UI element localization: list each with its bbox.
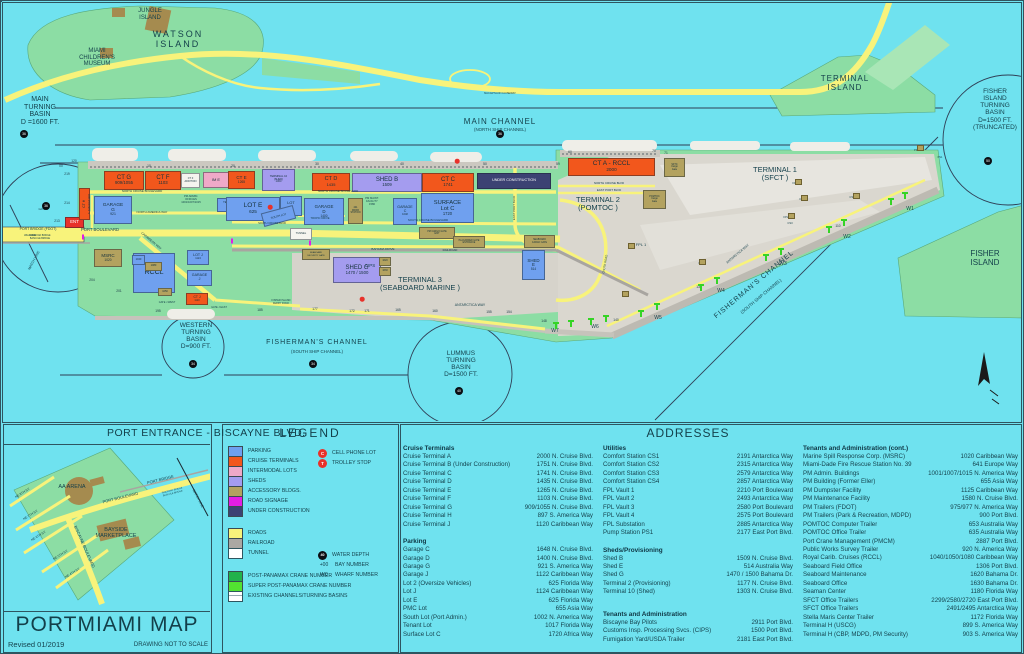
bay-number: 201 [116,289,122,293]
map-label-jungle: JUNGLE ISLAND [138,8,162,21]
small-building-icon [917,145,924,151]
small-building-icon [628,243,635,249]
address-value: 2580 Port Boulevard [737,504,793,512]
map-label-main: MAIN TURNING BASIN D =1600 FT. [21,96,59,127]
address-value: 1180 Florida Way [971,588,1018,596]
bay-number: 219 [64,172,70,176]
address-name: PM Admin. Buildings [803,470,859,478]
address-value: 921 S. America Way [538,563,593,571]
portmiami-map-title: PORTMIAMI MAP [16,613,199,637]
map-label-antarctica-way: ANTARCTICA WAY [726,244,750,265]
address-row: Seaboard Office1630 Bahama Dr. [803,580,1018,588]
address-value: 2181 East Port Blvd. [737,636,793,644]
address-name: Biscayne Bay Pilots [603,619,657,627]
address-row: PM Dumpster Facility1125 Caribbean Way [803,487,1018,495]
crane-icon [828,226,830,233]
address-name: Tenant Lot [403,622,432,630]
address-name: Seaman Center [803,588,846,596]
map-label-terminal-1: TERMINAL 1 (SFCT ) [753,166,797,183]
map-label-miami: MIAMI CHILDREN'S MUSEUM [79,48,115,68]
address-value: 2857 Antarctica Way [737,478,793,486]
address-row: Tenant Lot1017 Florida Way [403,622,593,630]
address-value: 655 Asia Way [556,605,593,613]
bay-number: 140 [613,318,619,322]
legend-label: TROLLEY STOP [332,460,371,466]
address-name: Garage D [403,555,430,563]
map-label-ne-4th-st-: NE 4TH ST. [65,568,81,580]
wharf-number-icon: W0 [318,571,330,580]
trolley-stop-icon: T [318,459,327,468]
addresses-column-1: Cruise TerminalsCruise Terminal A2000 N.… [403,444,593,639]
address-row: Lot E625 Florida Way [403,597,593,605]
address-row: Port Crane Management (PMCM)2887 Port Bl… [803,538,1018,546]
address-name: SFCT Office Trailers [803,597,858,605]
legend-label: UNDER CONSTRUCTION [248,508,310,514]
bay-number: 10 [147,164,151,168]
address-value: 1177 N. Cruise Blvd. [737,580,793,588]
address-value: 899 S. America Way [963,622,1018,630]
address-row: FPL Vault 22493 Antarctica Way [603,495,793,503]
small-building-icon [795,179,802,185]
map-label-macarthur-causeway: MACARTHUR CAUSEWAY [484,93,516,96]
legend-symbol-item: W0WHARF NUMBER [318,570,378,580]
bay-number: 177 [312,307,318,311]
legend-symbol-item: +00BAY NUMBER [318,560,378,570]
map-label-ne-7th-st-: NE 7TH ST. [23,510,39,522]
address-name: Cruise Terminal A [403,453,451,461]
bay-number: 214 [64,201,70,205]
cell-phone-lot-icon: C [318,449,327,458]
address-row: PM Trailers (FDOT)975/977 N. America Way [803,504,1018,512]
map-label-north-cruise-boulevard: NORTH CRUISE BOULEVARD [122,190,162,193]
address-name: Terminal 10 (Shed) [603,588,655,596]
legend-label: ACCESSORY BLDGS. [248,488,301,494]
water-depth-badge: 34 [189,360,197,368]
address-name: Cruise Terminal G [403,504,452,512]
address-value: 635 Australia Way [969,529,1018,537]
address-name: Shed G [603,571,624,579]
address-name: Comfort Station CS1 [603,453,659,461]
map-label-watson: WATSON ISLAND [153,30,204,50]
bay-number: 70 [652,149,656,153]
map-label-fpl-1: FPL 1 [636,243,647,247]
map-label-western: WESTERN TURNING BASIN D=900 FT. [180,322,213,351]
crane-icon [843,219,845,226]
address-row: Stella Maris Center Trailer1172 Florida … [803,614,1018,622]
bay-number: 40 [400,162,404,166]
bay-number: 71 [664,151,668,155]
address-row: FPL Vault 42575 Port Boulevard [603,512,793,520]
address-name: Surface Lot C [403,631,441,639]
address-value: 2911 Port Blvd. [751,619,793,627]
map-label-cs3: CS3 [787,223,792,226]
map-label-welcome: WELCOME [24,235,36,238]
underconst-swatch [228,506,243,517]
address-name: Garage C [403,546,430,554]
address-name: FPL Vault 3 [603,504,634,512]
address-value: 2315 Antarctica Way [737,461,793,469]
address-value: 655 Asia Way [981,478,1018,486]
bay-number: 155 [486,310,492,314]
address-row: POMTOC Office Trailer635 Australia Way [803,529,1018,537]
map-label-bahama-drive: BAHAMA DRIVE [371,248,394,251]
map-label-w4: W4 [717,289,725,295]
address-value: 2579 Antarctica Way [737,470,793,478]
address-name: Shed B [603,555,623,563]
address-row: Fumigation Yard/USDA Trailer2181 East Po… [603,636,793,644]
address-value: 514 Australia Way [744,563,793,571]
crane-icon [605,315,607,322]
address-name: Seaboard Maintenance [803,571,867,579]
address-value: 1741 N. Cruise Blvd. [537,470,593,478]
address-row: Cruise Terminal E1265 N. Cruise Blvd. [403,487,593,495]
address-name: POMTOC Computer Trailer [803,521,877,529]
address-name: Lot 2 (Oversize Vehicles) [403,580,471,588]
address-value: 2491/2495 Antarctica Way [947,605,1018,613]
water-depth-badge: 36 [42,202,50,210]
map-label-south-cruise-blvd: SOUTH CRUISE BLVD [258,223,286,226]
crane-icon [890,198,892,205]
address-name: Pump Station PS1 [603,529,653,537]
map-label-gate-j-west: GATE J WEST [159,302,175,305]
map-label-gate-j-east: GATE J EAST [211,307,227,310]
legend-symbol-item: 40WATER DEPTH [318,550,378,560]
bay-number: 213 [54,219,60,223]
address-row: Pump Station PS12177 East Port Blvd. [603,529,793,537]
address-name: Seaboard Office [803,580,847,588]
crane-icon [656,303,658,310]
address-name: Garage G [403,563,430,571]
address-row: Lot 2 (Oversize Vehicles)625 Florida Way [403,580,593,588]
address-row: FPL Vault 12210 Port Boulevard [603,487,793,495]
map-label-cips: CIPS [365,264,376,269]
address-name: FPL Substation [603,521,645,529]
map-label-w2: W2 [843,235,851,241]
legend-title: LEGEND [279,426,340,440]
address-row: Terminal 10 (Shed)1303 N. Cruise Blvd. [603,588,793,596]
address-value: 1306 Port Blvd. [976,563,1018,571]
address-name: Lot J [403,588,416,596]
map-label-pm-admin-: PM ADMIN. OFFICES 1001/1007/1015 [181,196,200,205]
address-row: Royal Carib. Cruises (RCCL)1040/1050/108… [803,554,1018,562]
address-value: 641 Europe Way [972,461,1018,469]
map-label-tropic-drive: TROPIC DRIVE [310,218,329,221]
bay-number: 59 [556,162,560,166]
map-label-lummus: LUMMUS TURNING BASIN D=1500 FT. [444,350,478,379]
address-name: POMTOC Office Trailer [803,529,866,537]
revised-date: Revised 01/2019 [8,640,64,649]
address-value: 1580 N. Cruise Blvd. [962,495,1018,503]
crane-icon [904,192,906,199]
address-name: PM Trailers (FDOT) [803,504,857,512]
address-row: PM Trailers (Park & Recreation, MDPD)900… [803,512,1018,520]
legend-symbol-list: CCELL PHONE LOTTTROLLEY STOP40WATER DEPT… [318,448,378,580]
address-row: Garage C1648 N. Cruise Blvd. [403,546,593,554]
addresses-column-3: Tenants and Administration (cont.)Marine… [803,444,1018,639]
map-label-port-boulevard: PORT BOULEVARD [102,492,138,505]
crane-icon [716,277,718,284]
map-label-port-bridge-fdot-: PORT BRIDGE (FDOT) [20,228,57,232]
address-value: 625 Florida Way [549,580,593,588]
address-name: South Lot (Port Admin.) [403,614,467,622]
map-label-ps1: PS1 [938,157,943,160]
map-label-s-america-way: S. AMERICA WAY [89,194,92,214]
bay-number: 154 [506,310,512,314]
address-name: FPL Vault 2 [603,495,634,503]
address-value: 1002 N. America Way [534,614,593,622]
address-row: Comfort Station CS42857 Antarctica Way [603,478,793,486]
address-row: Garage J1122 Caribbean Way [403,571,593,579]
address-value: 2299/2580/2720 East Port Blvd. [931,597,1018,605]
map-label-caribbean-way: CARIBBEAN WAY [140,232,162,251]
bay-number: 148 [541,319,547,323]
legend-label: CELL PHONE LOT [332,450,376,456]
address-row: FPL Vault 32580 Port Boulevard [603,504,793,512]
address-name: Royal Carib. Cruises (RCCL) [803,554,882,562]
address-value: 1125 Caribbean Way [961,487,1018,495]
address-row: Cruise Terminal J1120 Caribbean Way [403,521,593,529]
address-row: Garage G921 S. America Way [403,563,593,571]
bay-number: 165 [395,308,401,312]
map-label-north-cruise-blvd: NORTH CRUISE BLVD [594,182,624,185]
bay-number: 110 [835,224,840,228]
road-sign-icon [82,235,84,240]
address-row: POMTOC Computer Trailer653 Australia Way [803,521,1018,529]
small-building-icon [801,195,808,201]
address-row: Surface Lot C1720 Africa Way [403,631,593,639]
legend-label: WHARF NUMBER [335,572,378,578]
address-row: Customs Insp. Processing Svcs. (CIPS)150… [603,627,793,635]
address-value: 1435 N. Cruise Blvd. [537,478,593,486]
address-name: Shed E [603,563,623,571]
address-value: 1630 Bahama Dr. [970,580,1018,588]
address-name: Port Crane Management (PMCM) [803,538,895,546]
map-label-north-cruise-boulevard: NORTH CRUISE BOULEVARD [318,190,358,193]
address-row: Garage D1400 N. Cruise Blvd. [403,555,593,563]
address-name: Cruise Terminal F [403,495,451,503]
address-name: PMC Lot [403,605,427,613]
legend-label: RAILROAD [248,540,275,546]
legend-symbol-item: CCELL PHONE LOT [318,448,378,458]
address-value: 1017 Florida Way [545,622,593,630]
address-row: Terminal H (CBP, MDPD, PM Security)903 S… [803,631,1018,639]
map-label-terminal-2: TERMINAL 2 (POMTOC ) [576,196,620,213]
map-label-fisherman-s-channel: FISHERMAN'S CHANNEL [266,339,368,347]
map-label-railroad-bridge: RAILROAD BRIDGE BASCULE BRIDGE [162,487,184,497]
address-value: 1400 N. Cruise Blvd. [537,555,593,563]
address-name: Seaboard Field Office [803,563,862,571]
address-name: Garage J [403,571,428,579]
crane-icon [765,254,767,261]
address-row: SFCT Office Trailers2491/2495 Antarctica… [803,605,1018,613]
map-label-match-line: MATCH LINE [28,251,41,271]
address-value: 1001/1007/1015 N. America Way [928,470,1018,478]
portmiami-map-sheet: PORT ENTRANCE - BISCAYNE BLVD. LEGEND AD… [0,0,1024,654]
address-section-header: Sheds/Provisioning [603,546,793,555]
map-label-fisher-island: FISHER ISLAND FERRY DOCK [272,300,291,306]
water-depth-badge: 36 [20,130,28,138]
map-label-ne-8th-st-: NE 8TH ST. [15,488,31,500]
legend-symbol-item: TTROLLEY STOP [318,458,378,468]
legend-label: INTERMODAL LOTS [248,468,297,474]
address-value: 1040/1050/1080 Caribbean Way [930,554,1018,562]
address-section-header: Cruise Terminals [403,444,593,453]
address-name: Fumigation Yard/USDA Trailer [603,636,685,644]
bay-number: 160 [432,309,438,313]
address-value: 1122 Caribbean Way [536,571,593,579]
crane-icon [640,310,642,317]
map-label-ne-6th-st-: NE 6TH ST. [31,531,47,543]
address-value: 2887 Port Blvd. [976,538,1018,546]
address-name: Comfort Station CS2 [603,461,659,469]
address-value: 1509 N. Cruise Blvd. [737,555,793,563]
address-row: Seaboard Field Office1306 Port Blvd. [803,563,1018,571]
map-label-w5: W5 [654,316,662,322]
map-label-w1: W1 [906,207,914,213]
address-row: Seaboard Maintenance1620 Bahama Dr. [803,571,1018,579]
address-row: Seaman Center1180 Florida Way [803,588,1018,596]
map-label-biscayne-boulevard: BISCAYNE BOULEVARD [73,525,95,568]
map-label-port-bridge: PORT BRIDGE [147,475,175,486]
address-name: Cruise Terminal B (Under Construction) [403,461,510,469]
address-name: PM Maintenance Facility [803,495,870,503]
address-row: Lot J1124 Caribbean Way [403,588,593,596]
address-name: FPL Vault 4 [603,512,634,520]
address-value: 1303 N. Cruise Blvd. [737,588,793,596]
small-building-icon [788,213,795,219]
address-value: 1120 Caribbean Way [536,521,593,529]
address-name: Stella Maris Center Trailer [803,614,874,622]
address-value: 1103 N. Cruise Blvd. [537,495,593,503]
address-row: Cruise Terminal B (Under Construction)17… [403,461,593,469]
map-label-bayside: BAYSIDE MARKETPLACE [96,527,137,539]
address-row: Terminal H (USCG)899 S. America Way [803,622,1018,630]
legend-label: CRUISE TERMINALS [248,458,299,464]
address-value: 1648 N. Cruise Blvd. [537,546,593,554]
bay-number: 00 [59,164,63,168]
address-value: 903 S. America Way [963,631,1018,639]
address-value: 1172 Florida Way [971,614,1018,622]
map-label-fisher: FISHER ISLAND TURNING BASIN D=1500 FT. (… [973,88,1017,131]
bay-number: 172 [349,309,355,313]
address-row: Cruise Terminal H897 S. America Way [403,512,593,520]
address-name: Marine Spill Response Corp. (MSRC) [803,453,905,461]
legend-label: PARKING [248,448,271,454]
address-row: PM Admin. Buildings1001/1007/1015 N. Ame… [803,470,1018,478]
address-name: FPL Vault 1 [603,487,634,495]
address-name: Terminal 2 (Provisioning) [603,580,671,588]
legend-item: SUPER POST-PANAMAX CRANE NUMBER [228,581,351,591]
map-label-fisher: FISHER ISLAND [970,250,999,268]
legend-label: EXISTING CHANNELS/TURNING BASINS [248,593,347,599]
address-name: Terminal H (CBP, MDPD, PM Security) [803,631,908,639]
address-section-header: Tenants and Administration (cont.) [803,444,1018,453]
address-name: PM Building (Former Eller) [803,478,875,486]
address-name: Cruise Terminal C [403,470,452,478]
address-value: 1470 / 1500 Bahama Dr. [726,571,793,579]
crane-icon [570,320,572,327]
address-name: Comfort Station CS4 [603,478,659,486]
map-label-w3: W3 [779,262,787,268]
map-label-match-line: MATCH LINE [191,489,204,509]
map-label-main-channel: MAIN CHANNEL [464,118,536,127]
tunnel-swatch [228,548,243,559]
address-value: 2575 Port Boulevard [737,512,793,520]
address-value: 625 Florida Way [549,597,593,605]
crane-icon [555,322,557,329]
bay-number: 204 [89,278,95,282]
legend-label: SUPER POST-PANAMAX CRANE NUMBER [248,583,351,589]
address-row: PMC Lot655 Asia Way [403,605,593,613]
map-label-north-america-way: NORTH AMERICA WAY [137,211,168,214]
road-sign-icon [231,239,233,244]
address-value: 920 N. America Way [962,546,1018,554]
address-name: PM Dumpster Facility [803,487,861,495]
bay-number: 185 [257,308,263,312]
map-label-ne-5th-st-: NE 5TH ST. [53,550,69,562]
crane-icon [590,318,592,325]
map-label-railroad: RAILROAD [443,249,458,252]
address-value: 2210 Port Boulevard [737,487,793,495]
address-name: Terminal H (USCG) [803,622,856,630]
map-label-port-boulevard: PORT BOULEVARD [81,228,119,233]
address-value: 1620 Bahama Dr. [970,571,1018,579]
address-name: Customs Insp. Processing Svcs. (CIPS) [603,627,711,635]
water-depth-badge: 50 [984,157,992,165]
crane-icon [780,248,782,255]
map-label-chute-road: CHUTE ROAD [602,255,608,274]
address-value: 2000 N. Cruise Blvd. [537,453,593,461]
water-depth-icon: 40 [318,551,327,560]
address-row: Shed G1470 / 1500 Bahama Dr. [603,571,793,579]
legend-label: WATER DEPTH [332,552,369,558]
map-label-w6: W6 [591,325,599,331]
legend-label: ROAD SIGNAGE [248,498,288,504]
address-value: 909/1055 N. Cruise Blvd. [525,504,593,512]
small-building-icon [699,259,706,265]
address-value: 900 Port Blvd. [979,512,1018,520]
address-section-header: Parking [403,537,593,546]
scale-note: DRAWING NOT TO SCALE [134,642,208,648]
bay-number: 30 [315,162,319,166]
channels-swatch [228,591,243,602]
map-label--south-ship-channel-: (SOUTH SHIP CHANNEL) [291,350,343,355]
legend-label: TUNNEL [248,550,269,556]
address-row: Miami-Dade Fire Rescue Station No. 39641… [803,461,1018,469]
address-value: 1500 Port Blvd. [751,627,793,635]
address-value: 975/977 N. America Way [950,504,1018,512]
address-value: 1751 N. Cruise Blvd. [537,461,593,469]
address-row: PM Maintenance Facility1580 N. Cruise Bl… [803,495,1018,503]
address-row: South Lot (Port Admin.)1002 N. America W… [403,614,593,622]
bay-number-icon: +00 [318,561,330,570]
stop-dot-icon [455,159,460,164]
stop-dot-icon [360,297,365,302]
address-name: Comfort Station CS3 [603,470,659,478]
addresses-column-2: UtilitiesComfort Station CS12191 Antarct… [603,444,793,644]
map-label-south-cruise-boulevard: SOUTH CRUISE BOULEVARD [408,219,448,222]
address-name: PM Trailers (Park & Recreation, MDPD) [803,512,911,520]
address-name: Cruise Terminal H [403,512,452,520]
address-row: SFCT Office Trailers2299/2580/2720 East … [803,597,1018,605]
address-row: Shed E514 Australia Way [603,563,793,571]
address-row: Marine Spill Response Corp. (MSRC)1020 C… [803,453,1018,461]
map-label-w7: W7 [551,329,559,335]
address-section-header: Tenants and Administration [603,610,793,619]
bay-number: 171 [364,309,370,313]
address-row: Cruise Terminal C1741 N. Cruise Blvd. [403,470,593,478]
crane-icon [700,284,702,291]
